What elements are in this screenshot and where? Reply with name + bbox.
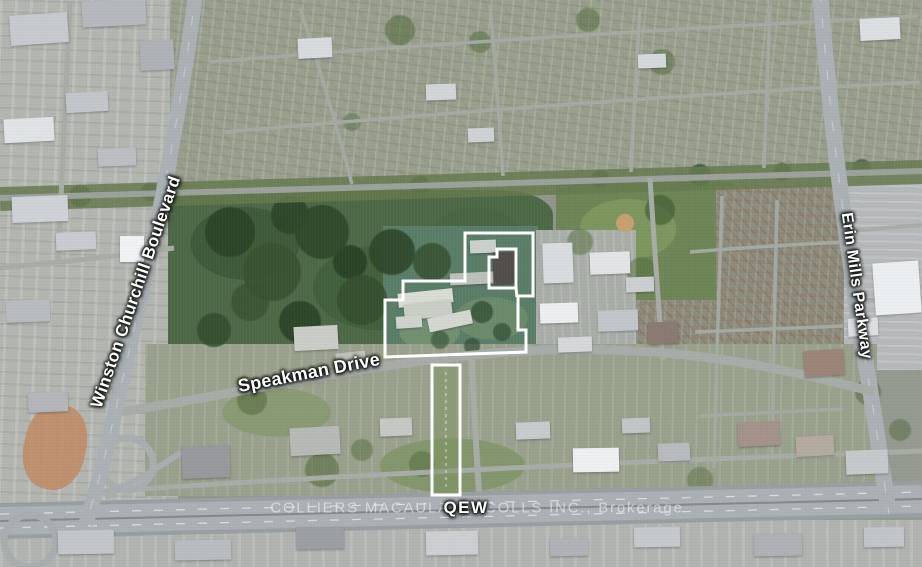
aerial-map-canvas: COLLIERS MACAULAY NICOLLS INC., Brokerag… [0, 0, 922, 567]
road-label-qew: QEW [443, 498, 488, 518]
